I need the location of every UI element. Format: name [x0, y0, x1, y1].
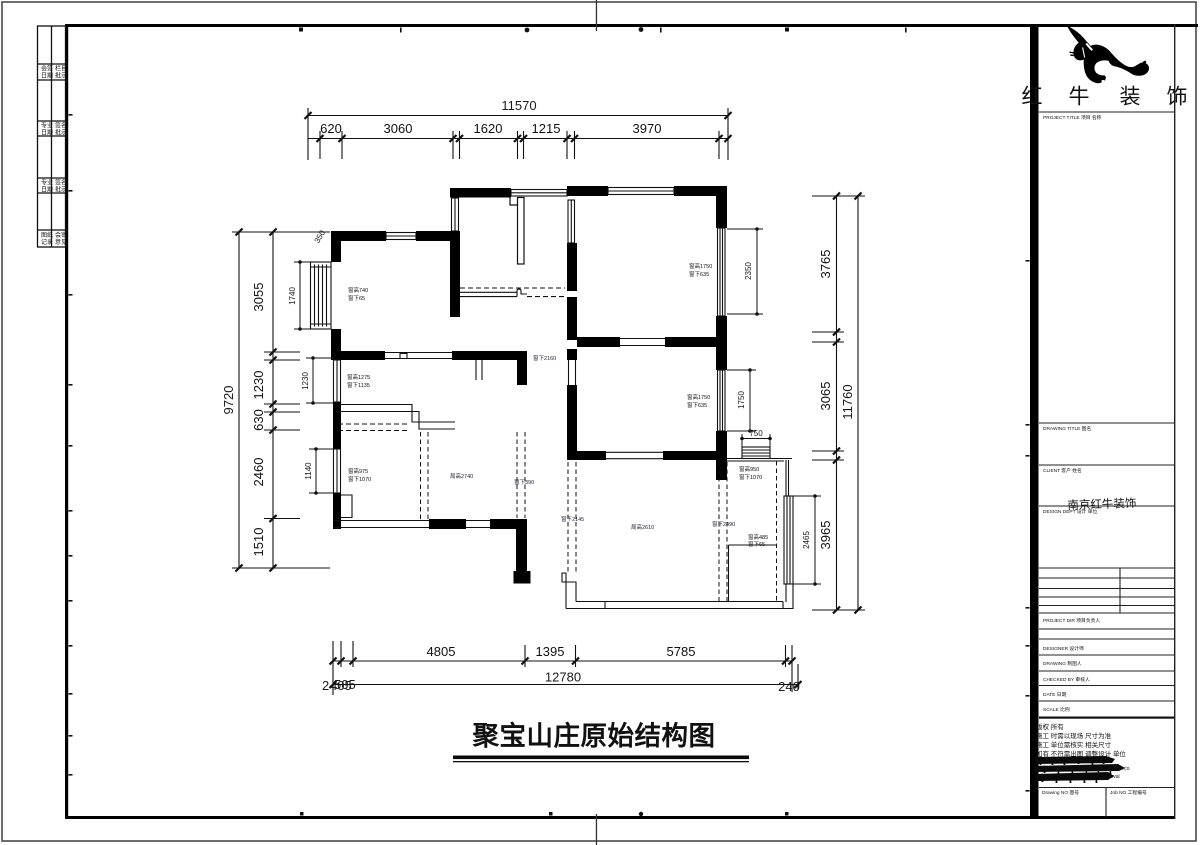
svg-text:1750: 1750: [737, 391, 746, 409]
svg-text:3970: 3970: [633, 121, 662, 136]
svg-text:版权 所有: 版权 所有: [1036, 722, 1064, 731]
svg-text:SCALE 比例: SCALE 比例: [1043, 706, 1070, 713]
svg-text:窗高975: 窗高975: [348, 467, 368, 475]
svg-text:签名: 签名: [55, 179, 67, 187]
svg-text:DRAWING TITLE 图名: DRAWING TITLE 图名: [1043, 425, 1091, 432]
svg-text:3965: 3965: [818, 521, 833, 550]
svg-text:意见: 意见: [55, 238, 67, 246]
svg-text:1140: 1140: [304, 462, 313, 480]
svg-text:窗下390: 窗下390: [514, 478, 534, 486]
svg-text:栏目: 栏目: [55, 65, 67, 73]
svg-text:红: 红: [1022, 86, 1043, 109]
svg-text:日期: 日期: [41, 72, 53, 80]
svg-text:装: 装: [1120, 86, 1141, 109]
svg-text:9720: 9720: [221, 386, 236, 415]
svg-text:窗高1750: 窗高1750: [689, 262, 712, 270]
svg-text:窗下635: 窗下635: [687, 401, 707, 409]
svg-text:3065: 3065: [818, 382, 833, 411]
svg-text:日期: 日期: [41, 186, 53, 194]
svg-text:3765: 3765: [818, 250, 833, 279]
svg-text:图纸: 图纸: [41, 231, 53, 239]
svg-text:3055: 3055: [251, 283, 266, 312]
svg-text:窗高740: 窗高740: [348, 286, 368, 294]
svg-text:窗下1135: 窗下1135: [347, 381, 370, 389]
svg-text:窗高1750: 窗高1750: [687, 393, 710, 401]
svg-text:DESIGNER 设计师: DESIGNER 设计师: [1043, 645, 1084, 652]
svg-text:窗下635: 窗下635: [689, 270, 709, 278]
svg-text:专业: 专业: [41, 122, 53, 130]
svg-text:窗下1070: 窗下1070: [348, 475, 371, 483]
svg-text:630: 630: [251, 409, 266, 431]
svg-text:聚宝山庄原始结构图: 聚宝山庄原始结构图: [472, 721, 716, 751]
svg-text:窗下65: 窗下65: [748, 540, 765, 548]
svg-text:2460: 2460: [251, 458, 266, 487]
svg-text:Job NO 工程编号: Job NO 工程编号: [1110, 789, 1147, 796]
svg-text:240: 240: [778, 679, 800, 694]
svg-text:DRAWING 制图人: DRAWING 制图人: [1043, 660, 1082, 667]
svg-text:11760: 11760: [840, 384, 855, 419]
svg-text:2: 2: [322, 678, 329, 693]
svg-text:12780: 12780: [545, 670, 581, 685]
svg-text:批示: 批示: [55, 72, 67, 80]
svg-text:窗下2160: 窗下2160: [533, 354, 556, 362]
svg-text:窗下65: 窗下65: [348, 294, 365, 302]
svg-text:窗下2490: 窗下2490: [712, 520, 735, 528]
svg-text:CHECKED BY 审核人: CHECKED BY 审核人: [1043, 676, 1090, 683]
svg-text:饰: 饰: [1167, 86, 1188, 109]
svg-text:1230: 1230: [251, 371, 266, 400]
svg-text:施工 时需以现场 尺寸为准: 施工 时需以现场 尺寸为准: [1036, 731, 1112, 740]
svg-text:1510: 1510: [251, 528, 266, 557]
svg-text:PROJECT TITLE 项目 名称: PROJECT TITLE 项目 名称: [1043, 114, 1102, 121]
svg-text:窗高1275: 窗高1275: [347, 373, 370, 381]
svg-text:窗下1070: 窗下1070: [739, 473, 762, 481]
svg-text:620: 620: [320, 121, 342, 136]
svg-text:11570: 11570: [501, 98, 536, 113]
svg-text:2350: 2350: [744, 262, 753, 280]
svg-text:局高2610: 局高2610: [631, 523, 654, 531]
svg-text:PROJECT DIR 项目负责人: PROJECT DIR 项目负责人: [1043, 617, 1100, 624]
svg-text:Drawing NO 图号: Drawing NO 图号: [1042, 790, 1079, 796]
svg-text:牛: 牛: [1069, 86, 1090, 109]
svg-text:批示: 批示: [55, 129, 67, 137]
svg-text:1740: 1740: [288, 287, 297, 305]
svg-text:专业: 专业: [41, 179, 53, 187]
svg-text:1620: 1620: [474, 121, 503, 136]
svg-text:会签: 会签: [41, 65, 53, 73]
svg-text:5785: 5785: [667, 644, 696, 659]
svg-text:窗高950: 窗高950: [739, 465, 759, 473]
svg-text:日期: 日期: [41, 129, 53, 137]
svg-text:会审: 会审: [55, 231, 67, 239]
svg-text:窗高485: 窗高485: [748, 533, 768, 541]
svg-text:施工 单位需核实 相关尺寸: 施工 单位需核实 相关尺寸: [1036, 740, 1112, 749]
svg-text:记录: 记录: [41, 238, 53, 246]
svg-text:签名: 签名: [55, 122, 67, 130]
svg-text:局高2740: 局高2740: [450, 472, 473, 480]
svg-text:1215: 1215: [532, 121, 561, 136]
svg-text:3060: 3060: [384, 121, 413, 136]
svg-text:750: 750: [749, 429, 763, 438]
svg-text:1230: 1230: [301, 372, 310, 390]
svg-text:DATE 日期: DATE 日期: [1043, 692, 1067, 698]
svg-text:2465: 2465: [802, 531, 811, 549]
svg-text:批示: 批示: [55, 186, 67, 194]
svg-text:4805: 4805: [427, 644, 456, 659]
svg-text:505: 505: [334, 677, 356, 692]
svg-text:1395: 1395: [536, 644, 565, 659]
svg-text:窗下2145: 窗下2145: [561, 515, 584, 523]
svg-text:CLIENT 客户 姓名: CLIENT 客户 姓名: [1043, 467, 1082, 474]
